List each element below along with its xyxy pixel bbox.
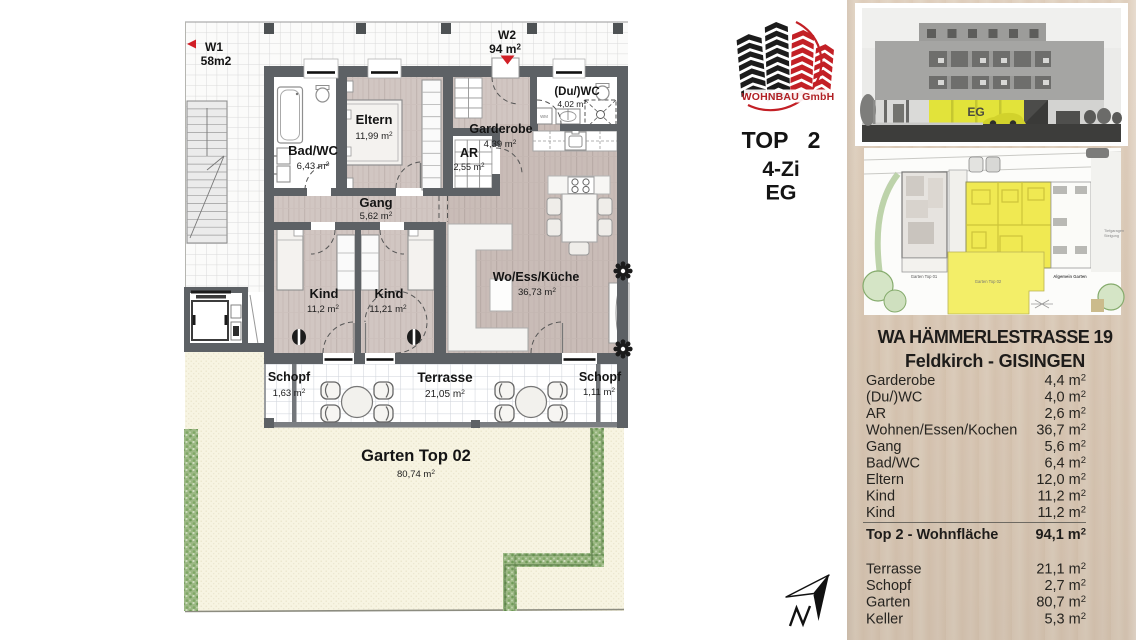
svg-text:Garten Top 02: Garten Top 02 — [361, 447, 471, 465]
svg-text:(Du/)WC: (Du/)WC — [866, 390, 922, 406]
svg-text:Bad/WC: Bad/WC — [866, 456, 920, 472]
svg-text:5,3 m2: 5,3 m2 — [1044, 611, 1086, 628]
svg-text:11,99 m2: 11,99 m2 — [355, 131, 393, 142]
svg-text:Kind: Kind — [866, 489, 895, 505]
svg-text:Feldkirch - GISINGEN: Feldkirch - GISINGEN — [905, 351, 1085, 371]
svg-text:Kind: Kind — [375, 286, 404, 301]
svg-text:6,43 m2: 6,43 m2 — [297, 161, 330, 172]
svg-text:WOHNBAU GmbH: WOHNBAU GmbH — [742, 91, 835, 103]
svg-text:W1: W1 — [205, 40, 223, 54]
svg-text:WA HÄMMERLESTRASSE 19: WA HÄMMERLESTRASSE 19 — [878, 327, 1113, 347]
svg-text:4-Zi: 4-Zi — [762, 158, 799, 181]
svg-text:AR: AR — [460, 146, 478, 160]
svg-text:Steigung: Steigung — [1104, 234, 1119, 238]
svg-text:2,6 m2: 2,6 m2 — [1044, 406, 1086, 423]
svg-text:TOP 2: TOP 2 — [742, 127, 821, 153]
svg-text:12,0 m2: 12,0 m2 — [1036, 472, 1086, 489]
svg-text:Garten Top 02: Garten Top 02 — [975, 279, 1002, 284]
svg-text:Gang: Gang — [866, 439, 901, 455]
svg-text:Eltern: Eltern — [356, 112, 393, 127]
svg-text:21,05 m2: 21,05 m2 — [425, 389, 465, 400]
svg-text:4,39 m2: 4,39 m2 — [484, 139, 517, 150]
svg-text:Schopf: Schopf — [268, 370, 311, 384]
svg-text:Schopf: Schopf — [579, 370, 622, 384]
svg-text:Kind: Kind — [310, 286, 339, 301]
svg-text:W2: W2 — [498, 28, 516, 42]
svg-text:80,74 m2: 80,74 m2 — [397, 469, 435, 480]
svg-text:Terrasse: Terrasse — [866, 562, 922, 578]
svg-text:1,63 m2: 1,63 m2 — [273, 388, 306, 399]
svg-text:1,11 m2: 1,11 m2 — [583, 387, 615, 398]
svg-text:80,7 m2: 80,7 m2 — [1036, 594, 1086, 611]
svg-text:(Du/)WC: (Du/)WC — [554, 86, 599, 98]
svg-text:11,21 m2: 11,21 m2 — [369, 304, 407, 315]
svg-text:Gang: Gang — [359, 195, 392, 210]
svg-text:Schopf: Schopf — [866, 578, 912, 594]
svg-text:4,4 m2: 4,4 m2 — [1044, 373, 1086, 390]
svg-text:36,73 m2: 36,73 m2 — [518, 287, 556, 298]
svg-text:21,1 m2: 21,1 m2 — [1036, 561, 1086, 578]
svg-text:Garderobe: Garderobe — [866, 373, 935, 389]
svg-text:Garderobe: Garderobe — [469, 122, 532, 136]
svg-text:Eltern: Eltern — [866, 472, 904, 488]
svg-text:Terrasse: Terrasse — [417, 370, 473, 385]
svg-text:AR: AR — [866, 406, 886, 422]
svg-text:2,7 m2: 2,7 m2 — [1044, 578, 1086, 595]
svg-text:WM: WM — [540, 114, 548, 119]
svg-text:4,0 m2: 4,0 m2 — [1044, 389, 1086, 406]
svg-text:Top 2 - Wohnfläche: Top 2 - Wohnfläche — [866, 527, 998, 543]
svg-text:5,6 m2: 5,6 m2 — [1044, 439, 1086, 456]
svg-text:36,7 m2: 36,7 m2 — [1036, 422, 1086, 439]
svg-text:Bad/WC: Bad/WC — [288, 143, 338, 158]
svg-text:Kind: Kind — [866, 505, 895, 521]
svg-text:Wo/Ess/Küche: Wo/Ess/Küche — [493, 270, 580, 284]
svg-text:94,1 m2: 94,1 m2 — [1036, 527, 1086, 544]
svg-text:2,55 m2: 2,55 m2 — [454, 162, 486, 172]
svg-text:Wohnen/Essen/Kochen: Wohnen/Essen/Kochen — [866, 423, 1017, 439]
svg-text:6,4 m2: 6,4 m2 — [1044, 455, 1086, 472]
svg-text:5,62 m2: 5,62 m2 — [360, 211, 393, 222]
svg-text:Garten Top 01: Garten Top 01 — [911, 274, 938, 279]
svg-text:Algemein Garten: Algemein Garten — [1053, 274, 1087, 279]
svg-text:Keller: Keller — [866, 611, 903, 627]
svg-text:11,2 m2: 11,2 m2 — [1037, 488, 1086, 505]
svg-text:11,2 m2: 11,2 m2 — [1037, 505, 1086, 522]
svg-text:4,02 m2: 4,02 m2 — [557, 99, 586, 109]
svg-text:Garten: Garten — [866, 595, 910, 611]
svg-text:EG: EG — [967, 105, 984, 119]
svg-text:58m2: 58m2 — [201, 54, 232, 68]
svg-text:EG: EG — [765, 181, 796, 205]
svg-text:11,2 m2: 11,2 m2 — [307, 304, 339, 315]
svg-text:Tiefgaragen: Tiefgaragen — [1104, 229, 1124, 233]
